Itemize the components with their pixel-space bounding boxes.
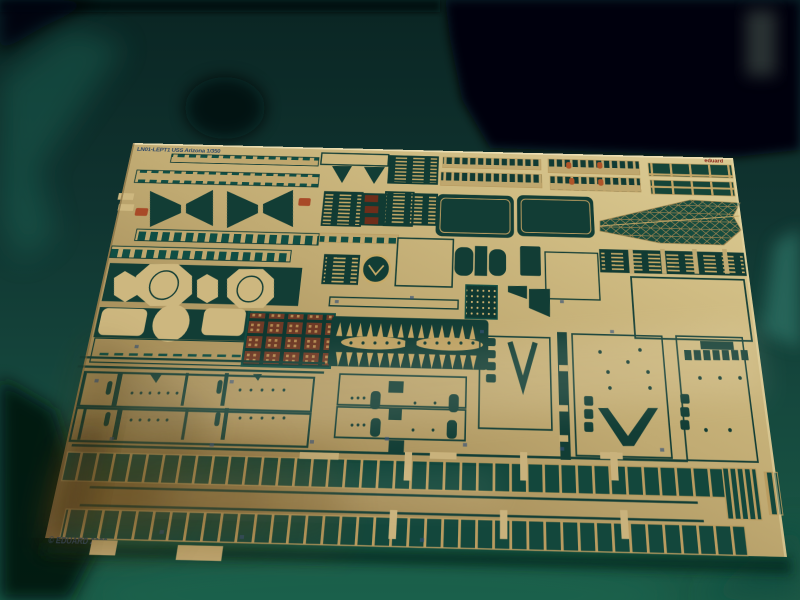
svg-text:eduard: eduard bbox=[704, 158, 724, 164]
